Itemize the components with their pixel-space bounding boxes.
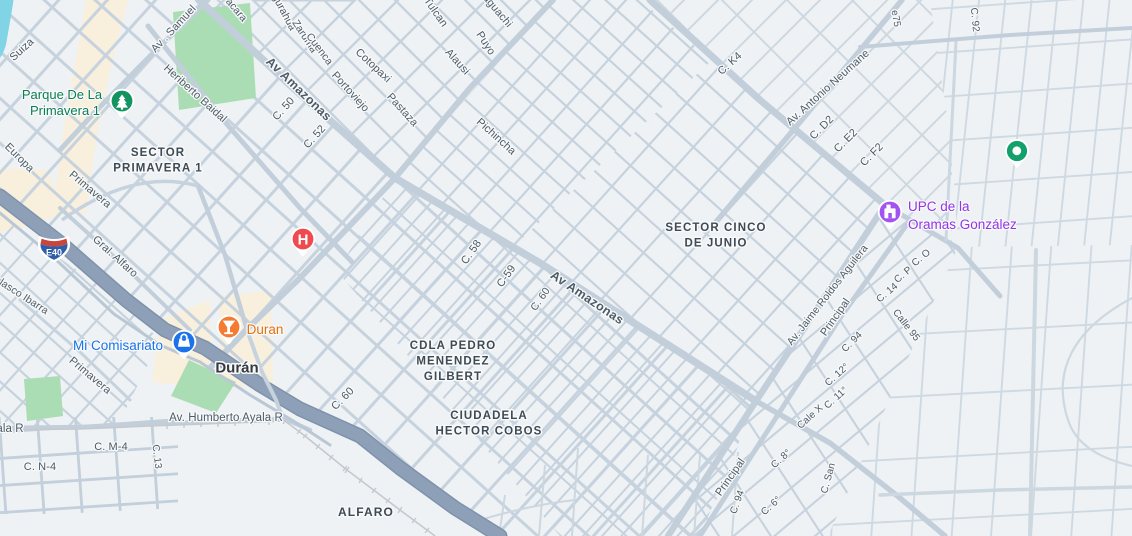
svg-text:GILBERT: GILBERT	[424, 371, 482, 383]
svg-text:CDLA PEDRO: CDLA PEDRO	[410, 340, 497, 352]
svg-text:E40: E40	[46, 248, 62, 258]
svg-text:Durán: Durán	[215, 360, 258, 377]
svg-text:Oramas González: Oramas González	[908, 217, 1017, 232]
svg-text:Primavera 1: Primavera 1	[30, 103, 100, 118]
svg-text:Av. Humberto Ayala R: Av. Humberto Ayala R	[169, 412, 283, 424]
svg-text:DE JUNIO: DE JUNIO	[684, 238, 747, 250]
svg-text:HECTOR COBOS: HECTOR COBOS	[436, 426, 543, 438]
svg-text:ALFARO: ALFARO	[338, 505, 394, 519]
svg-text:UPC de la: UPC de la	[908, 199, 970, 214]
svg-text:C. 92: C. 92	[968, 7, 981, 33]
svg-text:SECTOR CINCO: SECTOR CINCO	[665, 222, 766, 234]
svg-text:ala R: ala R	[0, 423, 24, 435]
svg-text:C. N-4: C. N-4	[24, 461, 56, 473]
svg-text:SECTOR: SECTOR	[131, 147, 185, 159]
svg-text:PRIMAVERA 1: PRIMAVERA 1	[113, 163, 202, 175]
svg-text:Mi Comisariato: Mi Comisariato	[73, 338, 163, 353]
svg-text:Parque De La: Parque De La	[22, 87, 103, 102]
svg-text:H: H	[298, 232, 309, 249]
svg-text:C. M-4: C. M-4	[94, 441, 128, 453]
svg-text:MENENDEZ: MENENDEZ	[416, 356, 489, 368]
svg-text:Duran: Duran	[247, 322, 284, 337]
svg-text:CIUDADELA: CIUDADELA	[450, 410, 528, 422]
